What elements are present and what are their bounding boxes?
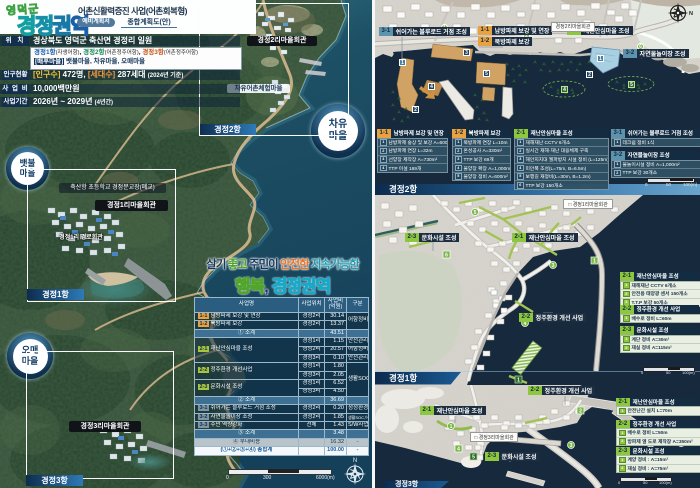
svg-text:N: N — [689, 11, 693, 17]
svg-text:1: 1 — [517, 378, 520, 384]
svg-text:6: 6 — [445, 253, 448, 259]
svg-text:5: 5 — [472, 455, 475, 461]
svg-text:3: 3 — [552, 263, 555, 269]
svg-text:1: 1 — [450, 424, 453, 430]
svg-text:3: 3 — [570, 443, 573, 449]
svg-text:1: 1 — [593, 259, 596, 265]
svg-text:2: 2 — [579, 409, 582, 415]
svg-text:5: 5 — [474, 210, 477, 216]
svg-text:4: 4 — [457, 447, 460, 453]
